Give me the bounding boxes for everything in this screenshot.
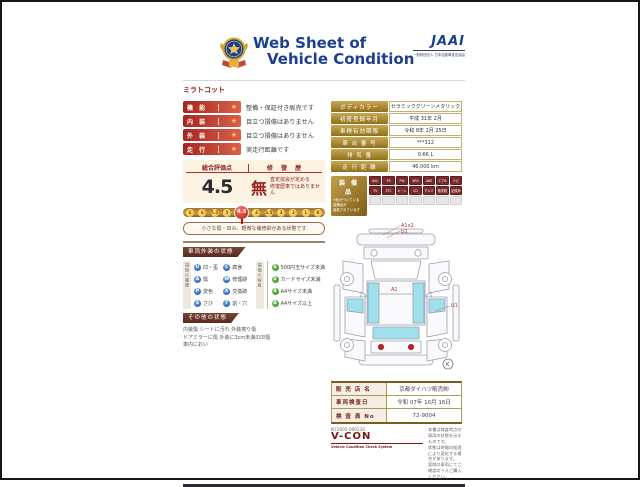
disclaimer-text: 本書は検査時点の車両の状態を示すものです。 状態は時間の経過により変化する場合が… [428,427,462,480]
info-label: 初度登録年月 [331,113,388,124]
legend-item: 4A4サイズ以上 [272,300,325,307]
legend-item: 2カードサイズ未満 [272,276,325,283]
front-bumper [357,234,435,245]
degree-code-icon: 2 [272,276,279,283]
equipment-badge-empty [450,196,462,205]
rear-window [373,327,419,339]
equipment-section: 装 備 品 ※色がついている 装備品が 装着されています AACPSPWSRSA… [331,176,462,216]
star-icon: ★ [231,132,237,139]
section-banner: その他の状態 [183,313,239,323]
equipment-badge-empty [436,196,448,205]
condition-text: 整備・保証付き販売です [246,103,314,112]
header-divider [183,80,465,81]
equipment-note: ※色がついている 装備品が 装着されています [333,198,365,213]
score-caption: 小さな傷・凹み、軽微な補修跡がある状態です [183,222,325,235]
equipment-badge: PW [396,176,408,185]
info-label: ボディカラー [331,101,388,112]
damage-note-roof: A1 [391,287,398,293]
equipment-title-box: 装 備 品 ※色がついている 装備品が 装着されています [331,176,367,216]
repair-history: 無 査定協会が定める 修復歴車ではありません [248,175,322,199]
dealer-label: 検 査 員 No [332,409,387,422]
degree-code-icon: 3 [272,288,279,295]
damage-degrees: 1500円玉サイズ未満 2カードサイズ未満 3A4サイズ未満 4A4サイズ以上 [267,261,325,309]
damage-code-icon: C [223,264,230,271]
left-glass [368,283,379,323]
scale-step: 5 [223,209,231,217]
vehicle-condition-sheet: Web Sheet of Vehicle Condition JAAI 一般財団… [183,30,465,487]
condition-text: 目立つ損傷はありません [246,117,314,126]
dealer-value: 令和 07年 10月 16日 [387,396,461,408]
scale-step: 6 [198,209,206,217]
overall-score-label: 総合評価点 [186,163,248,172]
exterior-section-header: 車両外装の状態 [183,247,325,257]
damage-code-icon: S [194,300,201,307]
legend-item: Sさび [194,300,223,307]
legend-item: U凹・歪 [194,264,223,271]
left-column: 機 能 ★ 整備・保証付き販売です 内 装 ★ 目立つ損傷はありません 外 装 [183,101,325,480]
section-divider [183,241,325,243]
right-door-glass [429,299,445,313]
condition-row-function: 機 能 ★ 整備・保証付き販売です [183,101,325,113]
repair-history-note: 査定協会が定める 修復歴車ではありません [270,177,322,197]
label-divider [218,118,219,125]
legend-item: 3A4サイズ未満 [272,288,325,295]
equipment-badge: CD [409,186,421,195]
tail-light-right-icon [408,344,413,349]
legend-item: C腐食 [223,264,252,271]
condition-label: 走 行 ★ [183,143,241,155]
equipment-badge: ABS [423,176,435,185]
legend-item: W修理跡 [223,276,252,283]
evaluation-scale: S65.554.543.5321R [183,208,325,217]
info-value: 令和 8年 2月 25日 [389,125,462,136]
vcon-subtitle: Vehicle Condition Check System [331,443,423,449]
damage-legend: 損傷の種類 U凹・歪 C腐食 A傷 W修理跡 P変色 X交換跡 Sさび T割・穴… [183,261,325,309]
evaluation-box: 総合評価点 修 復 歴 4.5 無 査定協会が定める 修復歴車ではありません [183,160,325,203]
scale-step: 1 [302,209,310,217]
info-value: 46,000 km [389,161,462,172]
info-value: セラミックグリーンメタリック [389,101,462,112]
inspection-emblem-icon [219,36,249,72]
vcon-block: N72005-000234 V-CON Vehicle Condition Ch… [331,427,423,480]
equipment-badge: アルミ [423,186,435,195]
equipment-badge: エアB [436,176,448,185]
sheet-footer: N72005-000234 V-CON Vehicle Condition Ch… [331,427,462,480]
condition-label-text: 内 装 [187,117,207,126]
legend-item: P変色 [194,288,223,295]
condition-text: 実走行距離です [246,145,289,154]
info-value: 平成 31年 2月 [389,113,462,124]
condition-row-exterior: 外 装 ★ 目立つ損傷はありません [183,129,325,141]
section-banner: 車両外装の状態 [183,247,246,257]
equipment-badge-empty [396,196,408,205]
left-rocker [334,285,340,341]
equipment-badge: ナビ [450,176,462,185]
tail-light-left-icon [378,344,383,349]
damage-note-front-2: U1 [401,229,408,235]
scale-step: R [314,209,322,217]
equipment-grid: AACPSPWSRSABSエアBナビTVETCキーレスCDアルミ衝突軽減記録簿 [369,176,462,216]
equipment-title: 装 備 品 [333,178,365,196]
equipment-badge-empty [382,196,394,205]
condition-row-interior: 内 装 ★ 目立つ損傷はありません [183,115,325,127]
dealer-row-inspection-date: 車両検査日 令和 07年 10月 16日 [332,396,461,409]
damage-code-icon: T [223,300,230,307]
equipment-badge-empty [369,196,381,205]
damage-type-label: 損傷の種類 [183,261,191,309]
label-divider [218,132,219,139]
damage-code-icon: P [194,288,201,295]
condition-label-text: 機 能 [187,103,207,112]
dealer-label: 車両検査日 [332,396,387,408]
equipment-badge: 衝突軽減 [436,186,448,195]
scale-step-selected: 4.5 [235,206,248,219]
page-frame: Web Sheet of Vehicle Condition JAAI 一般財団… [0,0,640,480]
damage-code-icon: A [194,276,201,283]
model-name: ミラトコット [183,85,465,95]
condition-row-mileage: 走 行 ★ 実走行距離です [183,143,325,155]
scale-step: 3.5 [265,209,273,217]
equipment-badge: ETC [382,186,394,195]
condition-label: 外 装 ★ [183,129,241,141]
evaluation-body: 4.5 無 査定協会が定める 修復歴車ではありません [186,175,322,199]
info-row-inspection-expiry: 車検有効期限 令和 8年 2月 25日 [331,125,462,136]
sheet-header: Web Sheet of Vehicle Condition JAAI 一般財団… [183,30,465,78]
damage-degree-label: 損傷の程度 [256,261,264,309]
condition-label: 内 装 ★ [183,115,241,127]
equipment-badge-empty [423,196,435,205]
star-icon: ★ [231,146,237,153]
legend-item: X交換跡 [223,288,252,295]
repair-history-value: 無 [251,175,267,199]
bottom-rule [183,484,465,487]
damage-code-icon: X [223,288,230,295]
damage-note-right: U1 [451,303,458,309]
condition-text: 目立つ損傷はありません [246,131,314,140]
legend-item: A傷 [194,276,223,283]
info-row-mileage: 走 行 距 離 46,000 km [331,161,462,172]
info-row-body-color: ボディカラー セラミックグリーンメタリック [331,101,462,112]
equipment-badge: TV [369,186,381,195]
repair-history-label: 修 復 歴 [249,163,322,172]
car-damage-diagram: A1x2 U1 A1 U1 K [331,221,462,373]
info-value: ***312 [389,137,462,148]
headlight-right-icon [415,250,421,256]
other-section-header: その他の状態 [183,313,325,323]
degree-code-icon: 1 [272,264,279,271]
scale-step: 4 [252,209,260,217]
info-row-first-registration: 初度登録年月 平成 31年 2月 [331,113,462,124]
info-label: 排 気 量 [331,149,388,160]
equipment-badge: AAC [369,176,381,185]
headlight-left-icon [371,250,377,256]
jaai-logo: JAAI [413,34,465,49]
sheet-title-line2: Vehicle Condition [253,52,414,68]
right-rocker [453,285,459,341]
jaai-logo-block: JAAI 一般財団法人 日本自動車査定協会 [413,34,465,57]
equipment-badge: キーレス [396,186,408,195]
legend-item: 1500円玉サイズ未満 [272,264,325,271]
right-glass [413,283,424,323]
evaluation-header: 総合評価点 修 復 歴 [186,163,322,173]
dealer-row-inspector-no: 検 査 員 No 72-9004 [332,409,461,422]
dealer-row-name: 販 売 店 名 京都ダイハツ販売㈱ [332,383,461,396]
overall-score-value: 4.5 [186,176,248,198]
dealer-table: 販 売 店 名 京都ダイハツ販売㈱ 車両検査日 令和 07年 10月 16日 検… [331,381,462,424]
damage-types: U凹・歪 C腐食 A傷 W修理跡 P変色 X交換跡 Sさび T割・穴 [194,261,253,309]
label-divider [218,104,219,111]
star-icon: ★ [231,118,237,125]
dealer-value: 72-9004 [387,409,461,422]
vcon-logo: V-CON [331,432,423,442]
info-label: 車検有効期限 [331,125,388,136]
condition-label: 機 能 ★ [183,101,241,113]
damage-code-icon: U [194,264,201,271]
condition-label-text: 走 行 [187,145,207,154]
sheet-title: Web Sheet of Vehicle Condition [253,36,414,68]
equipment-badge-empty [409,196,421,205]
dealer-label: 販 売 店 名 [332,383,387,395]
info-row-chassis-number: 車 台 番 号 ***312 [331,137,462,148]
other-condition-text: 内装傷 シートに汚れ 外装擦り傷 ドアミラーに傷 外装に3cm未満の凹傷 車内に… [183,327,325,350]
left-door-glass [347,299,363,313]
scale-step: 3 [277,209,285,217]
degree-code-icon: 4 [272,300,279,307]
info-label: 車 台 番 号 [331,137,388,148]
condition-label-text: 外 装 [187,131,207,140]
damage-code-icon: W [223,276,230,283]
equipment-badge: SRS [409,176,421,185]
scale-step: S [186,209,194,217]
equipment-badge: PS [382,176,394,185]
right-column: ボディカラー セラミックグリーンメタリック 初度登録年月 平成 31年 2月 車… [331,101,462,480]
jaai-subtitle: 一般財団法人 日本自動車査定協会 [413,50,465,57]
scale-step: 5.5 [211,209,219,217]
info-value: 0.66 L [389,149,462,160]
scale-step: 2 [289,209,297,217]
windshield [371,261,421,279]
label-divider [218,146,219,153]
legend-item: T割・穴 [223,300,252,307]
info-row-displacement: 排 気 量 0.66 L [331,149,462,160]
rear-bumper [359,355,433,365]
dealer-value: 京都ダイハツ販売㈱ [387,383,461,395]
info-label: 走 行 距 離 [331,161,388,172]
star-icon: ★ [231,104,237,111]
equipment-badge: 記録簿 [450,186,462,195]
